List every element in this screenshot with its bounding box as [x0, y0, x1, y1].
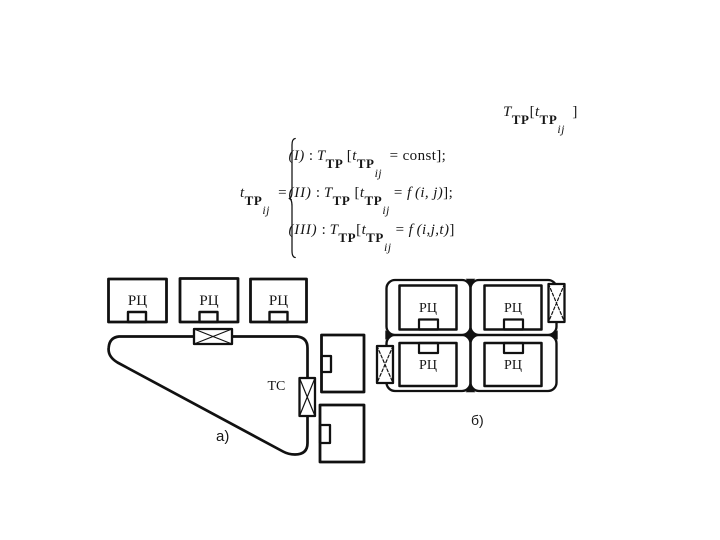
svg-text:РЦ: РЦ: [269, 293, 288, 309]
svg-text:РЦ: РЦ: [419, 301, 437, 316]
svg-text:РЦ: РЦ: [504, 358, 522, 373]
svg-text:РЦ: РЦ: [199, 293, 218, 309]
svg-text:РЦ: РЦ: [128, 293, 147, 309]
svg-text:б): б): [471, 412, 484, 428]
svg-text:РЦ: РЦ: [504, 301, 522, 316]
svg-text:РЦ: РЦ: [419, 358, 437, 373]
svg-text:ТС: ТС: [268, 379, 286, 394]
svg-text:а): а): [216, 428, 229, 445]
